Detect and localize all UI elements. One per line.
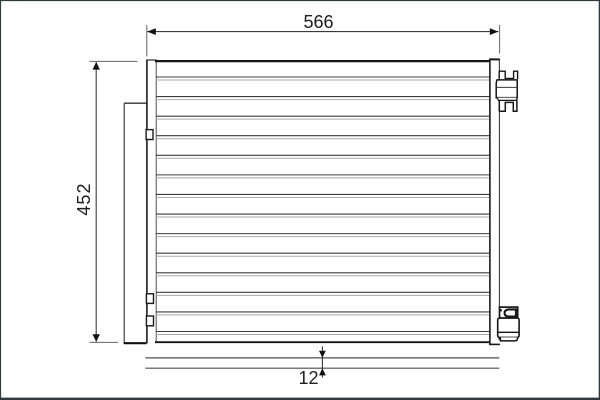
svg-text:566: 566 — [303, 12, 333, 32]
svg-text:12: 12 — [298, 368, 318, 388]
svg-text:452: 452 — [74, 182, 94, 215]
